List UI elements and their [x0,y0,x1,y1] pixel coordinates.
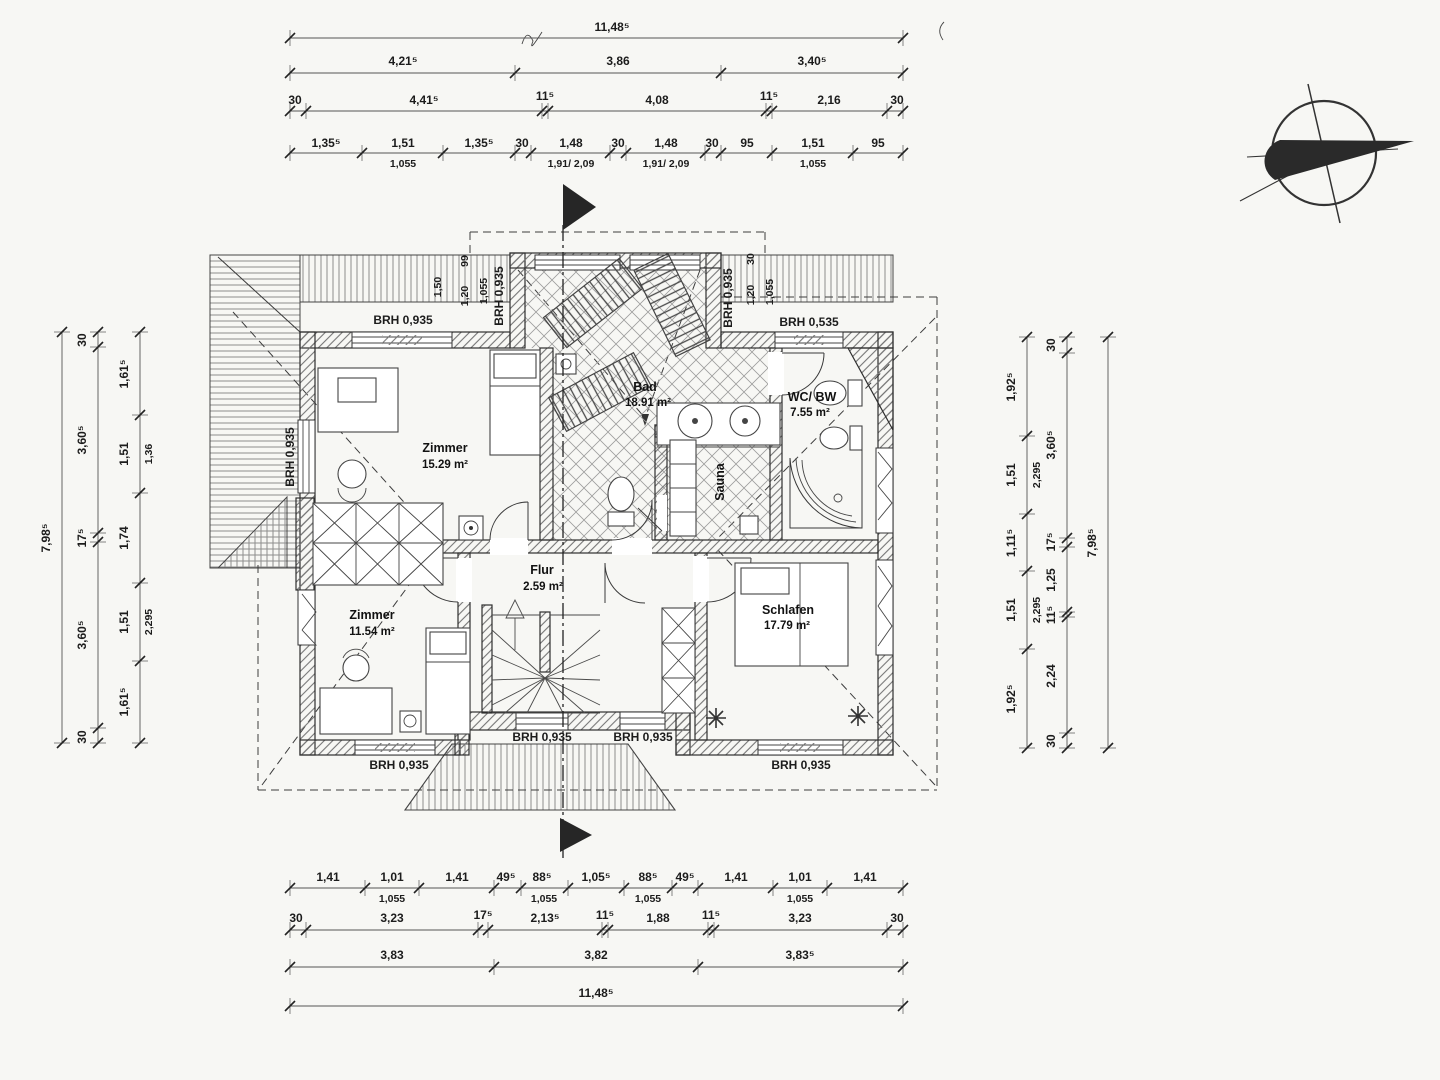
dim-label: 30 [705,136,719,150]
window-north-wc [775,332,843,348]
window-west-zimmer [298,420,315,493]
dim-sublabel: 1,055 [800,158,826,170]
dim-label: 1,61⁵ [117,360,131,389]
closet-schlafen [662,608,695,713]
dim-sublabel: 1,20 [745,285,757,306]
dim-label: 7,98⁵ [1085,529,1099,558]
room-name: Bad [633,380,657,394]
dim-label: 2,16 [817,93,841,107]
dim-sublabel: 2,295 [1031,597,1043,623]
dim-label: 1,35⁵ [465,136,494,150]
plant [706,708,726,728]
dim-label: 1,88 [646,911,670,925]
break-mark [522,32,542,46]
dim-sublabel: 1,50 [432,277,444,298]
dim-sublabel: 99 [459,255,471,267]
dim-label: 17⁵ [1044,533,1058,552]
dim-sublabel: 1,055 [635,893,661,905]
dim-sublabel: 1,055 [390,158,416,170]
dim-sublabel: 1,055 [764,279,776,305]
dim-label: 30 [515,136,529,150]
dim-label: 1,11⁵ [1004,529,1018,557]
dim-label: 1,01 [380,870,404,884]
dim-sublabel: 1,055 [379,893,405,905]
dim-label: 1,61⁵ [117,688,131,717]
room-area: 15.29 m² [422,459,468,471]
dim-label: 1,48 [559,136,583,150]
window-east-schlafen [876,560,893,655]
dim-label: 30 [75,730,89,744]
window-south-bay-right [620,712,665,730]
room-name: Schlafen [762,603,814,617]
dim-label: 30 [289,911,303,925]
sill-label: BRH 0,935 [373,313,433,327]
plant [848,706,868,726]
toilet-bad [608,477,634,526]
dim-label: 4,21⁵ [389,54,418,68]
sill-label: BRH 0,935 [721,268,735,328]
dim-label: 17⁵ [474,908,493,922]
window-east-wc [876,448,893,533]
dim-label: 4,41⁵ [410,93,439,107]
window-south-zimmer [355,740,435,755]
sill-label: BRH 0,935 [369,758,429,772]
dim-label: 3,60⁵ [75,426,89,455]
dim-label: 11⁵ [760,89,778,103]
dim-label: 11⁵ [596,908,614,922]
room-area: 17.79 m² [764,620,810,632]
window-south-bay-left [516,712,568,730]
dim-sublabel: 1,055 [478,278,490,304]
dim-sublabel: 2,295 [1031,462,1043,488]
dim-label: 30 [1044,338,1058,352]
dim-label: 49⁵ [497,870,516,884]
dim-label: 3,82 [584,948,608,962]
dim-label: 1,74 [117,526,131,550]
dim-sublabel: 2,295 [143,609,155,635]
room-area: 18.91 m² [625,397,671,409]
dim-label: 88⁵ [639,870,658,884]
desk-zimmer-sw [320,649,392,734]
dim-label: 49⁵ [676,870,695,884]
dim-label: 1,51 [1004,598,1018,622]
dim-label: 1,35⁵ [312,136,341,150]
small-box [400,711,421,732]
dim-label: 7,98⁵ [39,524,53,553]
dim-label: 1,41 [724,870,748,884]
dim-label: 95 [740,136,754,150]
dim-sublabel: 1,91/ 2,09 [643,158,690,170]
room-name: Zimmer [349,608,394,622]
dim-label: 3,60⁵ [75,621,89,650]
dim-label: 1,92⁵ [1004,373,1018,402]
room-name: WC/ BW [788,390,837,404]
room-name: Zimmer [422,441,467,455]
dim-label: 11,48⁵ [578,986,613,1000]
dim-label: 2,24 [1044,664,1058,688]
window-west-low [298,590,316,645]
dim-label: 11,48⁵ [594,20,629,34]
section-cut-flag [563,184,596,230]
sill-label: BRH 0,935 [512,730,572,744]
sill-label: BRH 0,935 [492,266,506,326]
section-cut-flag [560,818,592,852]
bidet-wc [820,426,862,450]
dim-sublabel: 1,20 [459,286,471,307]
closet-zimmer [313,503,443,585]
dim-label: 1,41 [316,870,340,884]
dim-label: 1,41 [445,870,469,884]
break-mark [940,22,944,40]
dim-label: 1,51 [117,610,131,634]
dim-label: 3,83⁵ [786,948,815,962]
chimney [459,516,483,540]
sill-label: BRH 0,935 [613,730,673,744]
bed-zimmer-nw [490,350,540,455]
room-area: 7.55 m² [790,407,830,419]
sill-label: BRH 0,935 [283,427,297,487]
floor-plan-drawing: 11,48⁵ 4,21⁵ 3,86 3,40⁵ 30 4,41⁵ 11⁵ 4,0… [0,0,1440,1080]
dim-label: 1,41 [853,870,877,884]
room-name: Flur [530,563,554,577]
corner-bathtub [790,450,862,528]
dim-label: 3,23 [380,911,404,925]
floor-plan-sheet: 11,48⁵ 4,21⁵ 3,86 3,40⁵ 30 4,41⁵ 11⁵ 4,0… [0,0,1440,1080]
dim-label: 1,51 [1004,463,1018,487]
dim-label: 1,25 [1044,568,1058,592]
window-south-schlafen [758,740,843,755]
dim-label: 3,83 [380,948,404,962]
dim-label: 3,86 [606,54,630,68]
dim-label: 30 [288,93,302,107]
dim-label: 30 [1044,734,1058,748]
radiator [556,354,576,374]
dim-label: 3,60⁵ [1044,431,1058,460]
dim-label: 30 [611,136,625,150]
dim-sublabel: 1,36 [143,444,155,465]
dim-label: 30 [75,333,89,347]
dim-label: 30 [890,911,904,925]
bed-zimmer-sw [426,628,470,734]
dim-sublabel: 1,91/ 2,09 [548,158,595,170]
dim-sublabel: 1,055 [787,893,813,905]
dim-label: 1,51 [117,442,131,466]
sill-label: BRH 0,535 [779,315,839,329]
dim-label: 3,40⁵ [798,54,827,68]
dim-label: 11⁵ [1044,606,1058,624]
dim-label: 95 [871,136,885,150]
dim-label: 11⁵ [536,89,554,103]
north-arrow-compass [1240,84,1414,223]
room-name: Sauna [713,462,727,501]
room-area: 2.59 m² [523,581,563,593]
dim-label: 17⁵ [75,529,89,548]
dim-label: 1,48 [654,136,678,150]
dim-sublabel: 30 [745,253,757,265]
room-area: 11.54 m² [349,626,395,638]
dim-label: 1,51 [391,136,415,150]
dim-label: 30 [890,93,904,107]
dim-label: 4,08 [645,93,669,107]
dim-label: 1,92⁵ [1004,685,1018,714]
dim-label: 88⁵ [533,870,552,884]
dim-label: 1,01 [788,870,812,884]
dim-sublabel: 1,055 [531,893,557,905]
dim-label: 11⁵ [702,908,720,922]
dim-label: 3,23 [788,911,812,925]
dim-label: 2,13⁵ [531,911,560,925]
dim-label: 1,51 [801,136,825,150]
dim-label: 1,05⁵ [582,870,611,884]
window-north-zimmer [352,332,452,348]
sill-label: BRH 0,935 [771,758,831,772]
